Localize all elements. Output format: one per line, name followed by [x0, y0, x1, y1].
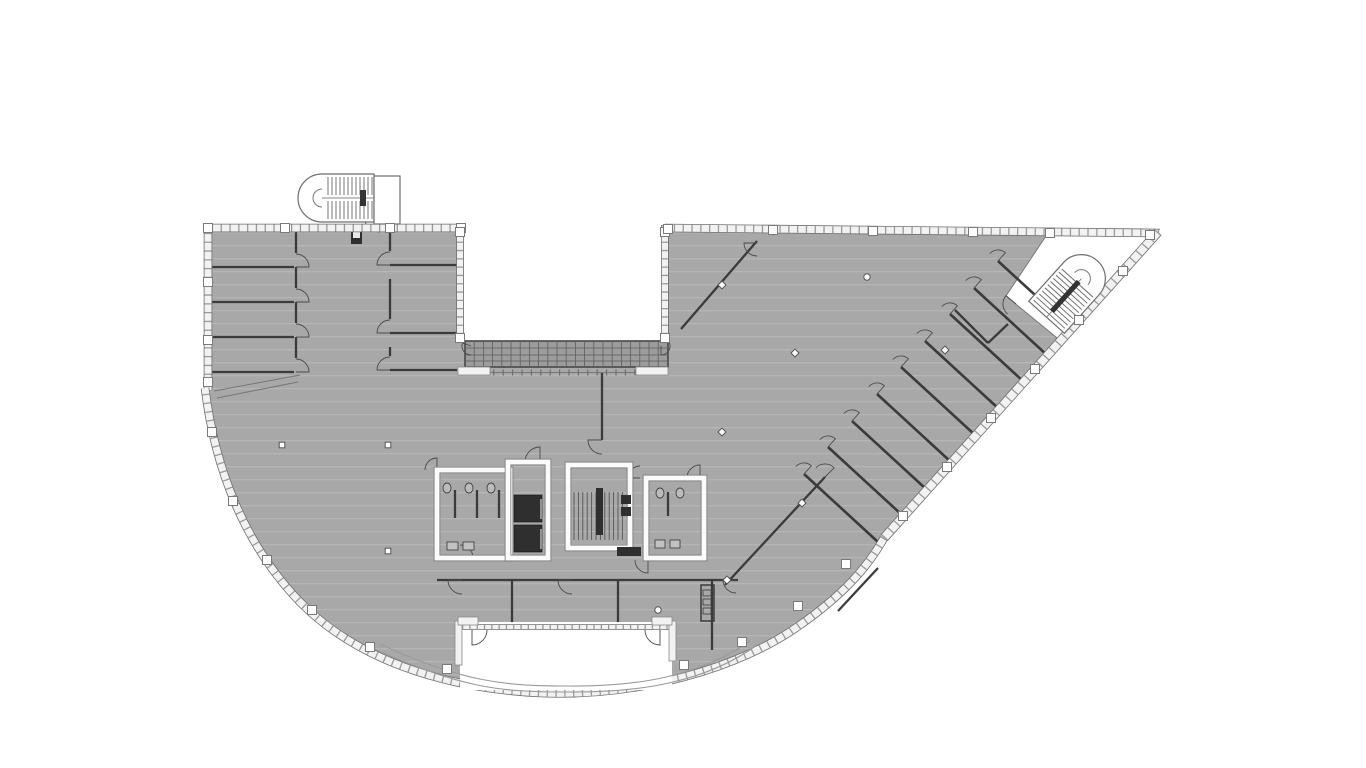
- wc-fixture: [443, 483, 451, 493]
- terrace-notch: [460, 622, 672, 690]
- facade-pier: [987, 414, 996, 423]
- facade-pier: [456, 334, 465, 343]
- facade-pier: [281, 224, 290, 233]
- terrace-pier: [652, 617, 672, 625]
- fixture-inner: [353, 232, 360, 238]
- facade-pier: [204, 224, 213, 233]
- terrace-pier: [455, 621, 462, 665]
- facade-pier: [204, 336, 213, 345]
- elevator-car: [514, 495, 542, 522]
- facade-pier: [943, 463, 952, 472]
- column-circle: [864, 274, 870, 280]
- facade-pier: [1031, 365, 1040, 374]
- dark-fixture: [621, 495, 631, 504]
- facade-pier: [208, 428, 217, 437]
- facade-pier: [869, 227, 878, 236]
- column-square: [385, 548, 391, 554]
- stair-lobby-northwest: [374, 176, 400, 224]
- facade-pier: [456, 228, 465, 237]
- dark-fixture: [596, 488, 603, 535]
- facade-pier: [664, 225, 673, 234]
- facade-pier: [899, 512, 908, 521]
- facade-pier: [386, 224, 395, 233]
- wc-fixture: [487, 483, 495, 493]
- facade-pier: [1075, 316, 1084, 325]
- elevator-car: [514, 525, 542, 552]
- sink-fixture: [463, 542, 474, 550]
- terrace-pier: [458, 617, 478, 625]
- column-square: [385, 442, 391, 448]
- wc-fixture: [676, 488, 684, 498]
- facade-pier: [794, 602, 803, 611]
- facade-pier: [842, 560, 851, 569]
- facade-pier: [229, 497, 238, 506]
- sink-fixture: [447, 542, 458, 550]
- floor-plan-drawing: [0, 0, 1366, 768]
- bridge-sill: [636, 367, 668, 375]
- bridge-sill: [458, 367, 490, 375]
- column-square: [279, 442, 285, 448]
- facade-pier: [366, 643, 375, 652]
- sink-fixture: [670, 540, 680, 548]
- facade-pier: [969, 228, 978, 237]
- dark-fixture: [621, 507, 631, 516]
- facade-pier: [443, 665, 452, 674]
- external-stair-northwest: [298, 174, 374, 222]
- facade-pier: [1046, 229, 1055, 238]
- dark-fixture: [617, 547, 641, 556]
- facade-pier: [661, 334, 670, 343]
- facade-pier: [204, 278, 213, 287]
- facade-pier: [204, 378, 213, 387]
- external-stair-northwest-landing-bar: [360, 190, 366, 206]
- column-circle: [655, 607, 661, 613]
- floor-plan-canvas: [0, 0, 1366, 768]
- wc-fixture: [465, 483, 473, 493]
- facade-pier: [680, 661, 689, 670]
- facade-pier: [308, 606, 317, 615]
- sink-fixture: [655, 540, 665, 548]
- facade-pier: [263, 556, 272, 565]
- terrace-pier: [669, 621, 676, 661]
- facade-pier: [1146, 231, 1155, 240]
- plan-layers: [203, 174, 1160, 693]
- facade-pier: [738, 638, 747, 647]
- facade-top-right-wing: [665, 228, 1160, 233]
- facade-pier: [1119, 267, 1128, 276]
- wc-fixture: [656, 488, 664, 498]
- facade-pier: [769, 226, 778, 235]
